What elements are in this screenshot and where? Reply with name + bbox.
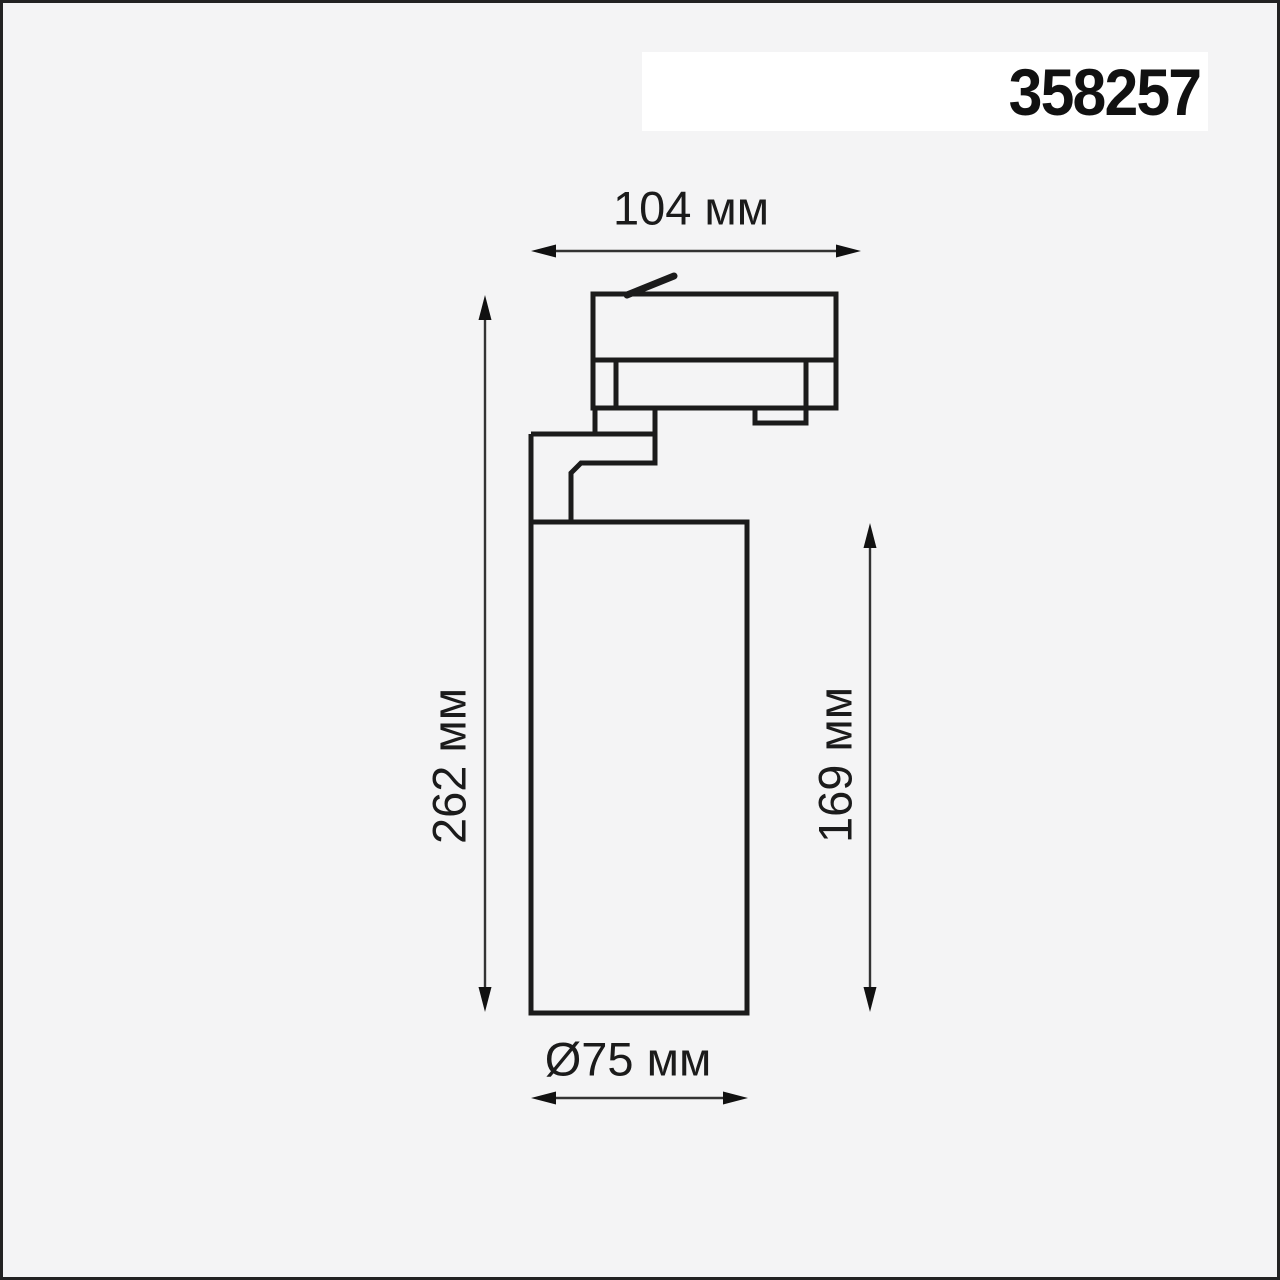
dim-body-height-label: 169 мм bbox=[812, 687, 859, 843]
dim-overall-height-label: 262 мм bbox=[426, 688, 473, 844]
mounting-arm bbox=[531, 408, 655, 522]
dim-width-arrow bbox=[531, 245, 861, 258]
dimension-arrows bbox=[479, 245, 877, 1105]
dim-body-height-arrow bbox=[864, 523, 877, 1012]
dim-diameter-arrow bbox=[531, 1092, 748, 1105]
dim-width-label: 104 мм bbox=[613, 185, 769, 232]
dim-overall-height-arrow bbox=[479, 295, 492, 1012]
dim-diameter-label: Ø75 мм bbox=[545, 1036, 712, 1083]
lamp-body bbox=[531, 522, 747, 1013]
adapter-contact-tab bbox=[755, 408, 806, 423]
track-adapter bbox=[593, 276, 836, 423]
drawing-canvas: 358257 bbox=[0, 0, 1280, 1280]
